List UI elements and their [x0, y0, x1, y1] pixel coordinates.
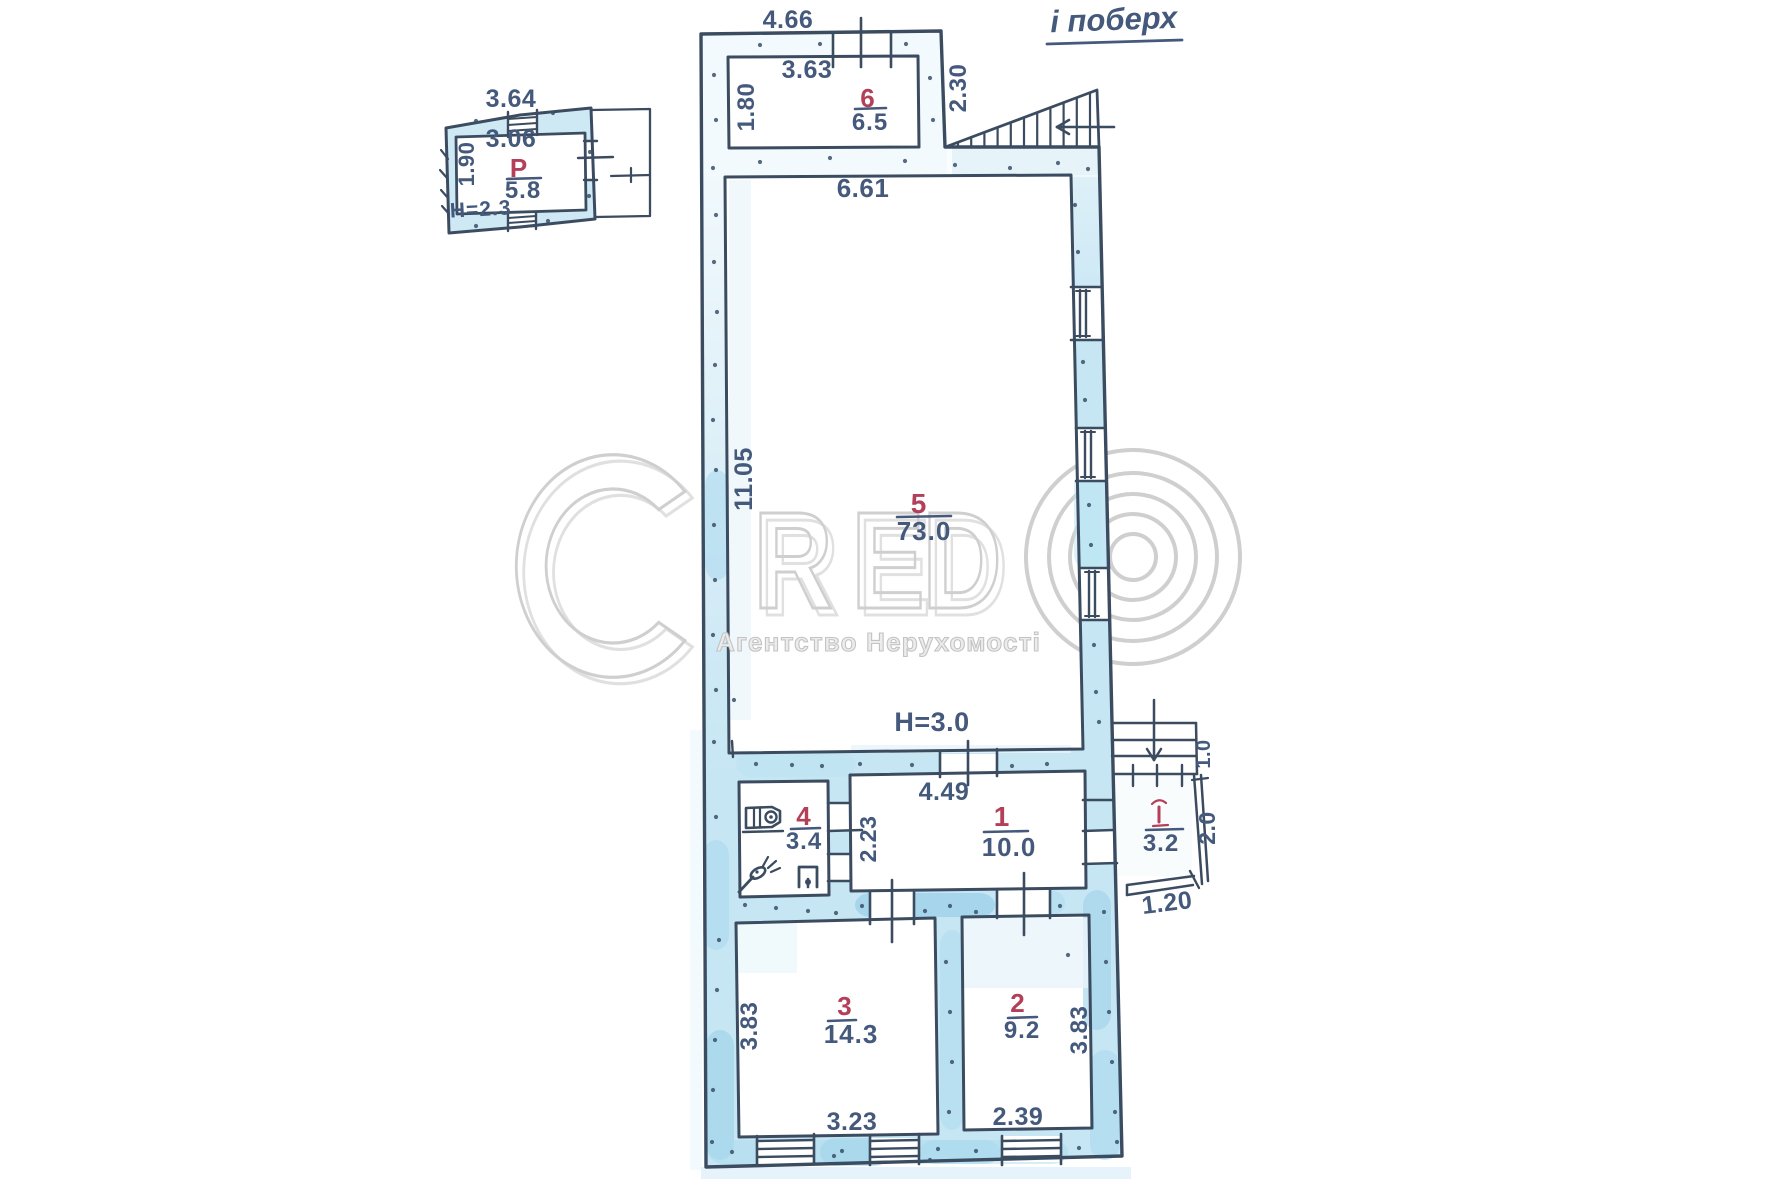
svg-text:10.0: 10.0 — [982, 832, 1037, 862]
svg-text:5: 5 — [911, 488, 928, 519]
svg-text:3.64: 3.64 — [486, 85, 537, 113]
svg-text:Агентство Нерухомості: Агентство Нерухомості — [716, 627, 1041, 657]
svg-text:1.0: 1.0 — [1193, 739, 1215, 768]
svg-text:і поберх: і поберх — [1050, 0, 1180, 39]
svg-text:6.5: 6.5 — [852, 109, 888, 136]
svg-text:2.0: 2.0 — [1194, 811, 1220, 844]
svg-text:3.83: 3.83 — [736, 1002, 763, 1051]
svg-text:6.61: 6.61 — [837, 173, 890, 203]
svg-text:3.4: 3.4 — [786, 828, 822, 855]
svg-text:1.80: 1.80 — [733, 83, 760, 132]
svg-text:3.06: 3.06 — [486, 125, 537, 153]
svg-text:2: 2 — [1010, 988, 1025, 1018]
svg-text:2.39: 2.39 — [993, 1103, 1044, 1131]
svg-text:4.66: 4.66 — [763, 6, 814, 34]
svg-text:1.20: 1.20 — [1140, 886, 1194, 920]
svg-text:4: 4 — [796, 801, 811, 831]
svg-text:11.05: 11.05 — [730, 447, 758, 511]
svg-text:H=2.3: H=2.3 — [449, 196, 512, 222]
svg-text:2.30: 2.30 — [945, 64, 972, 113]
svg-text:Н=3.0: Н=3.0 — [894, 707, 969, 737]
svg-text:3.2: 3.2 — [1143, 830, 1179, 857]
svg-text:1.90: 1.90 — [454, 142, 479, 187]
svg-text:1: 1 — [994, 801, 1011, 832]
svg-text:2.23: 2.23 — [855, 816, 881, 863]
svg-text:R: R — [753, 484, 833, 637]
svg-text:9.2: 9.2 — [1004, 1017, 1040, 1044]
svg-text:14.3: 14.3 — [824, 1019, 879, 1049]
svg-text:3.23: 3.23 — [827, 1108, 878, 1136]
svg-text:3.83: 3.83 — [1066, 1006, 1093, 1055]
svg-text:4.49: 4.49 — [919, 778, 970, 806]
svg-text:73.0: 73.0 — [897, 516, 952, 546]
svg-text:D: D — [922, 484, 1002, 637]
svg-text:3: 3 — [837, 991, 852, 1021]
svg-text:3.63: 3.63 — [782, 56, 833, 84]
svg-text:5.8: 5.8 — [505, 177, 541, 204]
